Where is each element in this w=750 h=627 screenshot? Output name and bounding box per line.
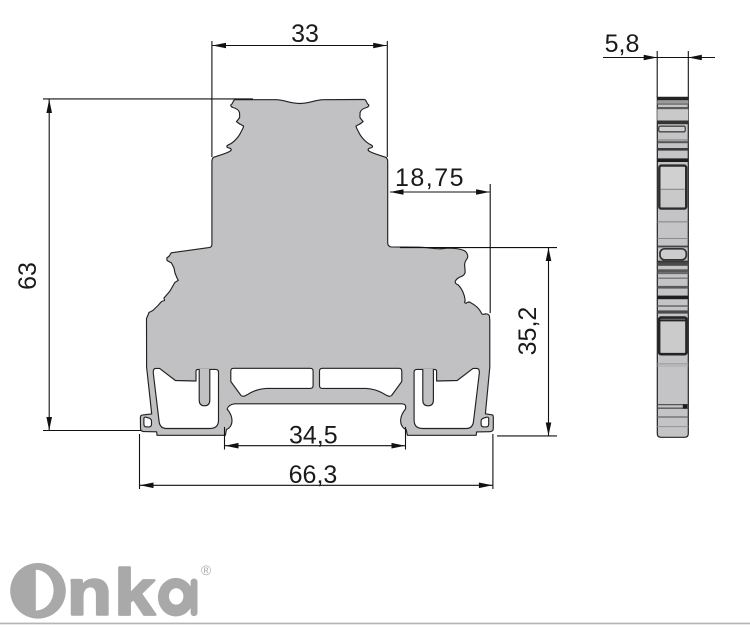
svg-text:34,5: 34,5 <box>289 422 338 450</box>
svg-text:63: 63 <box>14 262 42 290</box>
svg-text:®: ® <box>201 563 211 578</box>
svg-text:35,2: 35,2 <box>514 307 542 356</box>
svg-text:33: 33 <box>291 20 319 48</box>
svg-text:5,8: 5,8 <box>605 30 640 58</box>
svg-text:18,75: 18,75 <box>395 164 465 192</box>
svg-text:nk: nk <box>67 555 158 627</box>
svg-text:66,3: 66,3 <box>289 461 338 489</box>
